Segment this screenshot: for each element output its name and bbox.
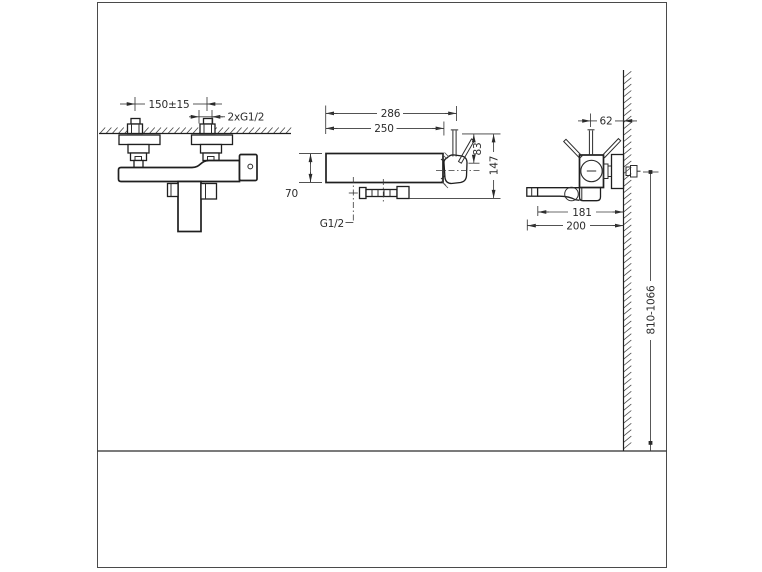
dim-lever-axis-to-wall-label: 62: [600, 116, 613, 128]
right-escutcheon: [192, 135, 233, 161]
shower-outlet-front: [178, 182, 201, 232]
lever-top: [451, 130, 458, 157]
dim-supply-connections-label: 2xG1/2: [228, 112, 265, 124]
wall-union-side: [604, 155, 624, 189]
front-view: 150±15 2xG1/2: [99, 97, 291, 232]
left-supply-bolt: [128, 119, 143, 134]
spout-underside: [538, 196, 580, 200]
left-escutcheon: [119, 135, 160, 168]
dim-installation-height: 810-1066: [643, 170, 659, 451]
dim-overall-projection: 200: [527, 220, 623, 233]
dim-supply-connections: 2xG1/2: [189, 110, 264, 124]
dim-lever-height-label: 83: [472, 143, 484, 156]
lever-side: [588, 130, 595, 156]
mixer-body-top: [326, 154, 443, 183]
dim-body-width-label: 250: [374, 123, 393, 135]
side-connection-front: [201, 184, 217, 200]
dim-body-depth-label: 70: [285, 188, 298, 200]
right-supply-bolt: [200, 119, 215, 134]
body-base-side: [580, 188, 601, 201]
dim-body-width: 250: [326, 122, 444, 136]
spout-tip: [527, 188, 538, 197]
dim-spout-projection-label: 181: [572, 207, 591, 219]
dim-overall-width-label: 286: [381, 108, 401, 120]
technical-drawing-page: 150±15 2xG1/2: [0, 0, 762, 572]
dim-outlet-thread: G1/2: [320, 177, 358, 230]
drawing-border: [98, 3, 667, 568]
dim-hole-spacing-label: 150±15: [149, 99, 190, 111]
top-view: G1/2 286 250 70: [285, 106, 500, 230]
dim-hole-spacing: 150±15: [120, 97, 222, 111]
dim-spout-projection: 181: [538, 206, 624, 219]
wall-anchor-bolt: [626, 166, 641, 178]
dim-overall-depth-label: 147: [488, 156, 500, 175]
dim-installation-height-label: 810-1066: [645, 285, 657, 334]
side-view: 62 181 200 810-1066: [527, 70, 659, 451]
wall-hatch: [624, 71, 632, 448]
dim-overall-projection-label: 200: [566, 220, 585, 232]
dim-body-depth: 70: [285, 154, 322, 200]
dim-outlet-thread-label: G1/2: [320, 218, 344, 230]
technical-drawing: 150±15 2xG1/2: [0, 0, 762, 572]
diverter-knob-front: [168, 184, 179, 197]
